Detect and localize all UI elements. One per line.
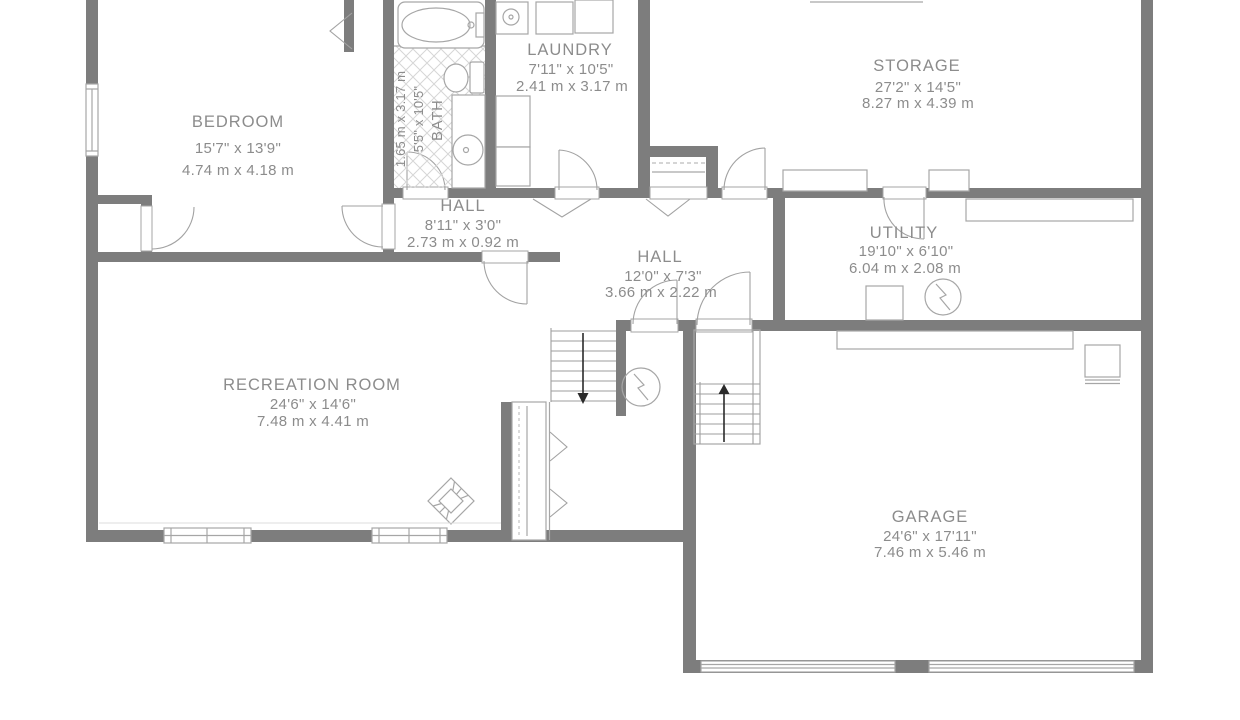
storage-cabinet-right <box>929 170 969 191</box>
label-bedroom: BEDROOM 15'7" x 13'9" 4.74 m x 4.18 m <box>182 113 294 179</box>
bath-dims-metric: 1.65 m x 3.17 m <box>393 71 408 167</box>
chimney-body <box>512 402 546 540</box>
opening-recreation-upper-icon <box>550 432 567 461</box>
hall-closet <box>652 163 705 172</box>
bedroom-dims-imperial: 15'7" x 13'9" <box>195 140 281 157</box>
arrow-up-head-icon <box>719 384 730 394</box>
wall-bath-laundry <box>485 0 496 198</box>
door-swing-laundry <box>559 150 597 190</box>
water-heater-symbol-utility <box>925 279 961 315</box>
storage-name: STORAGE <box>873 57 960 75</box>
hall-upper-dims-metric: 2.73 m x 0.92 m <box>407 234 519 251</box>
door-swing-bedroom-closet <box>152 207 194 249</box>
wall-right-exterior <box>1141 0 1153 673</box>
doorway-closet <box>650 187 707 199</box>
recreation-dims-imperial: 24'6" x 14'6" <box>270 396 356 413</box>
laundry-dims-imperial: 7'11" x 10'5" <box>528 61 613 78</box>
bedroom-dims-metric: 4.74 m x 4.18 m <box>182 162 294 179</box>
hall-lower-dims-metric: 3.66 m x 2.22 m <box>605 284 717 301</box>
stairs-up-outline <box>694 330 760 444</box>
window-bedroom <box>86 84 98 156</box>
garage-dims-imperial: 24'6" x 17'11" <box>883 528 977 545</box>
doorway-bedroom-closet <box>141 206 152 251</box>
bath-dims-imperial: 5'5" x 10'5" <box>411 86 426 153</box>
opening-recreation-lower-icon <box>550 489 567 517</box>
dryer <box>575 0 613 33</box>
utility-name: UTILITY <box>870 224 938 242</box>
chimney <box>512 402 550 540</box>
garage-dims-metric: 7.46 m x 5.46 m <box>874 544 986 561</box>
doorway-storage <box>722 187 767 199</box>
laundry-name: LAUNDRY <box>527 41 613 59</box>
bath-name: BATH <box>430 99 446 141</box>
doorway-laundry <box>555 187 599 199</box>
recreation-dims-metric: 7.48 m x 4.41 m <box>257 413 369 430</box>
door-swing-recreation <box>484 261 527 304</box>
window-recreation-left <box>164 528 251 543</box>
wall-laundry-east <box>638 0 650 198</box>
wall-stairwell-east <box>616 320 626 416</box>
doorway-utility <box>883 187 926 199</box>
laundry-cabinet-lower <box>496 147 530 186</box>
garage-utility-box <box>1085 345 1120 384</box>
water-heater-symbol-hall <box>622 368 660 406</box>
label-hall-lower: HALL 12'0" x 7'3" 3.66 m x 2.22 m <box>605 248 717 301</box>
wall-bedroom-closet-top <box>97 195 144 204</box>
floorplan-svg: BEDROOM 15'7" x 13'9" 4.74 m x 4.18 m BA… <box>0 0 1240 720</box>
fireplace-symbol <box>428 478 474 524</box>
wall-utility-west <box>773 195 785 331</box>
stairs-up <box>694 330 760 444</box>
laundry-cabinet-upper <box>496 96 530 147</box>
washer <box>536 2 573 34</box>
wall-recreation-east <box>501 402 512 542</box>
stairs-down <box>551 328 616 404</box>
utility-counter <box>966 199 1133 221</box>
doorway-recreation <box>482 251 528 263</box>
doorway-bedroom <box>382 204 395 249</box>
hall-lower-dims-imperial: 12'0" x 7'3" <box>624 268 702 285</box>
bathtub <box>398 2 484 48</box>
utility-dims-imperial: 19'10" x 6'10" <box>859 243 954 260</box>
storage-cabinet-left <box>783 170 867 191</box>
workbench <box>837 331 1073 349</box>
doorway-furnace-closet <box>631 319 678 332</box>
garage-door-right <box>929 661 1134 672</box>
label-storage: STORAGE 27'2" x 14'5" 8.27 m x 4.39 m <box>862 57 974 112</box>
storage-dims-imperial: 27'2" x 14'5" <box>875 79 961 96</box>
laundry-dims-metric: 2.41 m x 3.17 m <box>516 78 628 95</box>
utility-dims-metric: 6.04 m x 2.08 m <box>849 260 961 277</box>
storage-dims-metric: 8.27 m x 4.39 m <box>862 95 974 112</box>
label-laundry: LAUNDRY 7'11" x 10'5" 2.41 m x 3.17 m <box>516 41 628 95</box>
opening-hall-junction-icon <box>533 199 591 217</box>
floorplan-canvas: BEDROOM 15'7" x 13'9" 4.74 m x 4.18 m BA… <box>0 0 1240 720</box>
window-recreation-right <box>372 528 447 543</box>
door-swing-storage <box>724 148 765 190</box>
label-garage: GARAGE 24'6" x 17'11" 7.46 m x 5.46 m <box>874 508 986 561</box>
sink <box>453 135 483 165</box>
bedroom-name: BEDROOM <box>192 113 284 131</box>
furnace-box <box>866 286 903 320</box>
label-hall-upper: HALL 8'11" x 3'0" 2.73 m x 0.92 m <box>407 197 519 251</box>
label-utility: UTILITY 19'10" x 6'10" 6.04 m x 2.08 m <box>849 224 961 277</box>
arrow-down-head-icon <box>578 393 589 404</box>
hall-upper-dims-imperial: 8'11" x 3'0" <box>425 217 501 234</box>
garage-name: GARAGE <box>892 508 969 526</box>
door-swing-bedroom <box>342 206 383 247</box>
laundry-sink <box>496 2 528 34</box>
garage-door-left <box>701 661 895 672</box>
stairs-up-treads <box>694 330 760 444</box>
wall-left-exterior <box>86 0 98 542</box>
label-recreation: RECREATION ROOM 24'6" x 14'6" 7.48 m x 4… <box>223 376 401 430</box>
opening-closet-hall-icon <box>646 199 690 216</box>
hall-upper-name: HALL <box>440 197 485 215</box>
hall-lower-name: HALL <box>637 248 682 266</box>
garage-fixtures <box>701 331 1134 672</box>
recreation-name: RECREATION ROOM <box>223 376 401 394</box>
